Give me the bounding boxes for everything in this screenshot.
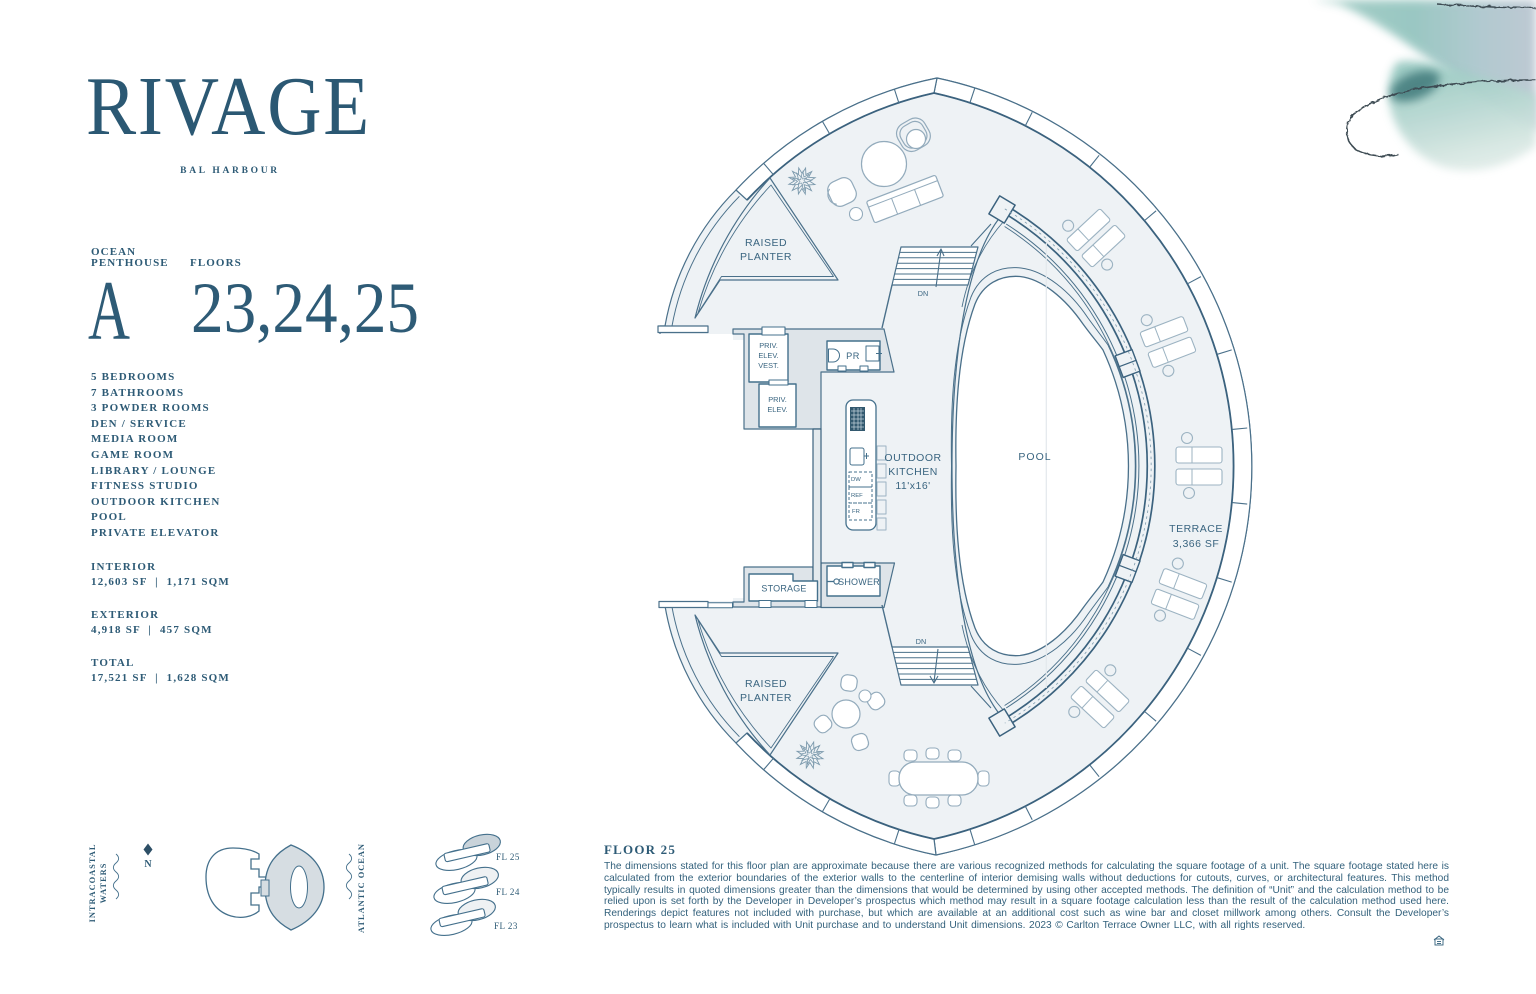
- svg-text:VEST.: VEST.: [758, 361, 779, 370]
- svg-text:DN: DN: [918, 289, 928, 298]
- svg-text:PRIV.: PRIV.: [759, 341, 778, 350]
- svg-text:DW: DW: [851, 477, 861, 483]
- svg-text:ATLANTIC OCEAN: ATLANTIC OCEAN: [357, 843, 366, 933]
- svg-text:SHOWER: SHOWER: [838, 577, 880, 587]
- svg-text:RAISED: RAISED: [745, 678, 787, 690]
- svg-text:POOL: POOL: [1018, 451, 1051, 463]
- svg-text:FL 23: FL 23: [494, 921, 518, 931]
- svg-text:RIVAGE: RIVAGE: [86, 60, 371, 153]
- svg-text:11'x16': 11'x16': [895, 480, 930, 492]
- svg-text:OUTDOOR: OUTDOOR: [884, 452, 941, 464]
- svg-text:FR: FR: [852, 509, 860, 515]
- svg-text:FL 24: FL 24: [496, 887, 520, 897]
- svg-text:DN: DN: [916, 637, 926, 646]
- svg-text:3,366 SF: 3,366 SF: [1173, 538, 1220, 550]
- svg-text:PLANTER: PLANTER: [740, 692, 792, 704]
- svg-text:ELEV.: ELEV.: [767, 405, 787, 414]
- svg-text:23,24,25: 23,24,25: [191, 268, 419, 348]
- svg-text:RAISED: RAISED: [745, 237, 787, 249]
- svg-text:TERRACE: TERRACE: [1169, 523, 1223, 535]
- svg-text:FL 25: FL 25: [496, 852, 520, 862]
- svg-text:WATERS: WATERS: [99, 863, 108, 904]
- svg-text:A: A: [88, 264, 130, 358]
- svg-text:ELEV.: ELEV.: [758, 351, 778, 360]
- svg-text:KITCHEN: KITCHEN: [888, 466, 938, 478]
- svg-text:STORAGE: STORAGE: [761, 584, 806, 594]
- svg-text:PRIV.: PRIV.: [768, 395, 787, 404]
- svg-text:PR: PR: [846, 351, 860, 361]
- svg-text:INTRACOASTAL: INTRACOASTAL: [88, 844, 97, 923]
- svg-text:N: N: [144, 859, 152, 870]
- svg-text:PLANTER: PLANTER: [740, 251, 792, 263]
- svg-text:REF: REF: [851, 493, 863, 499]
